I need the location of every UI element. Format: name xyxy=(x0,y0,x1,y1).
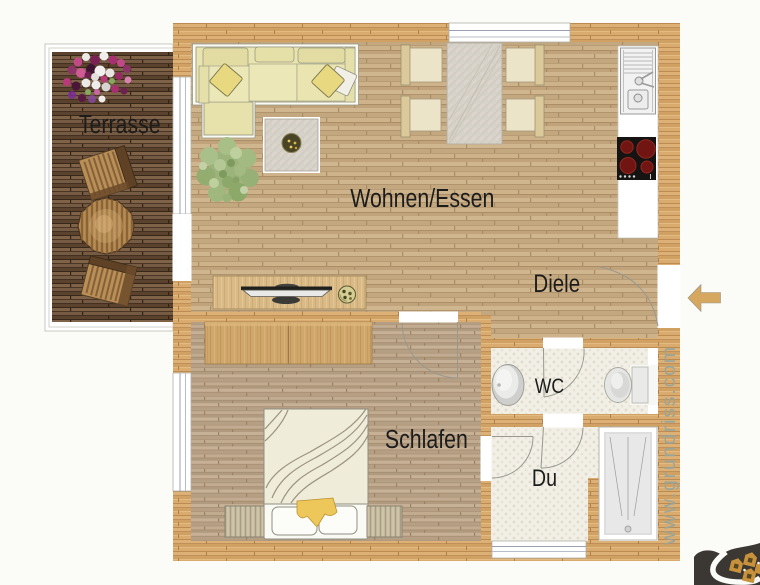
svg-text:www.grundriss.com: www.grundriss.com xyxy=(658,345,680,546)
svg-text:WC: WC xyxy=(535,374,564,398)
svg-text:Terrasse: Terrasse xyxy=(79,110,161,140)
svg-text:Wohnen/Essen: Wohnen/Essen xyxy=(350,184,494,214)
svg-text:Du: Du xyxy=(532,464,557,491)
svg-text:Diele: Diele xyxy=(533,269,580,297)
svg-text:Schlafen: Schlafen xyxy=(385,425,468,455)
